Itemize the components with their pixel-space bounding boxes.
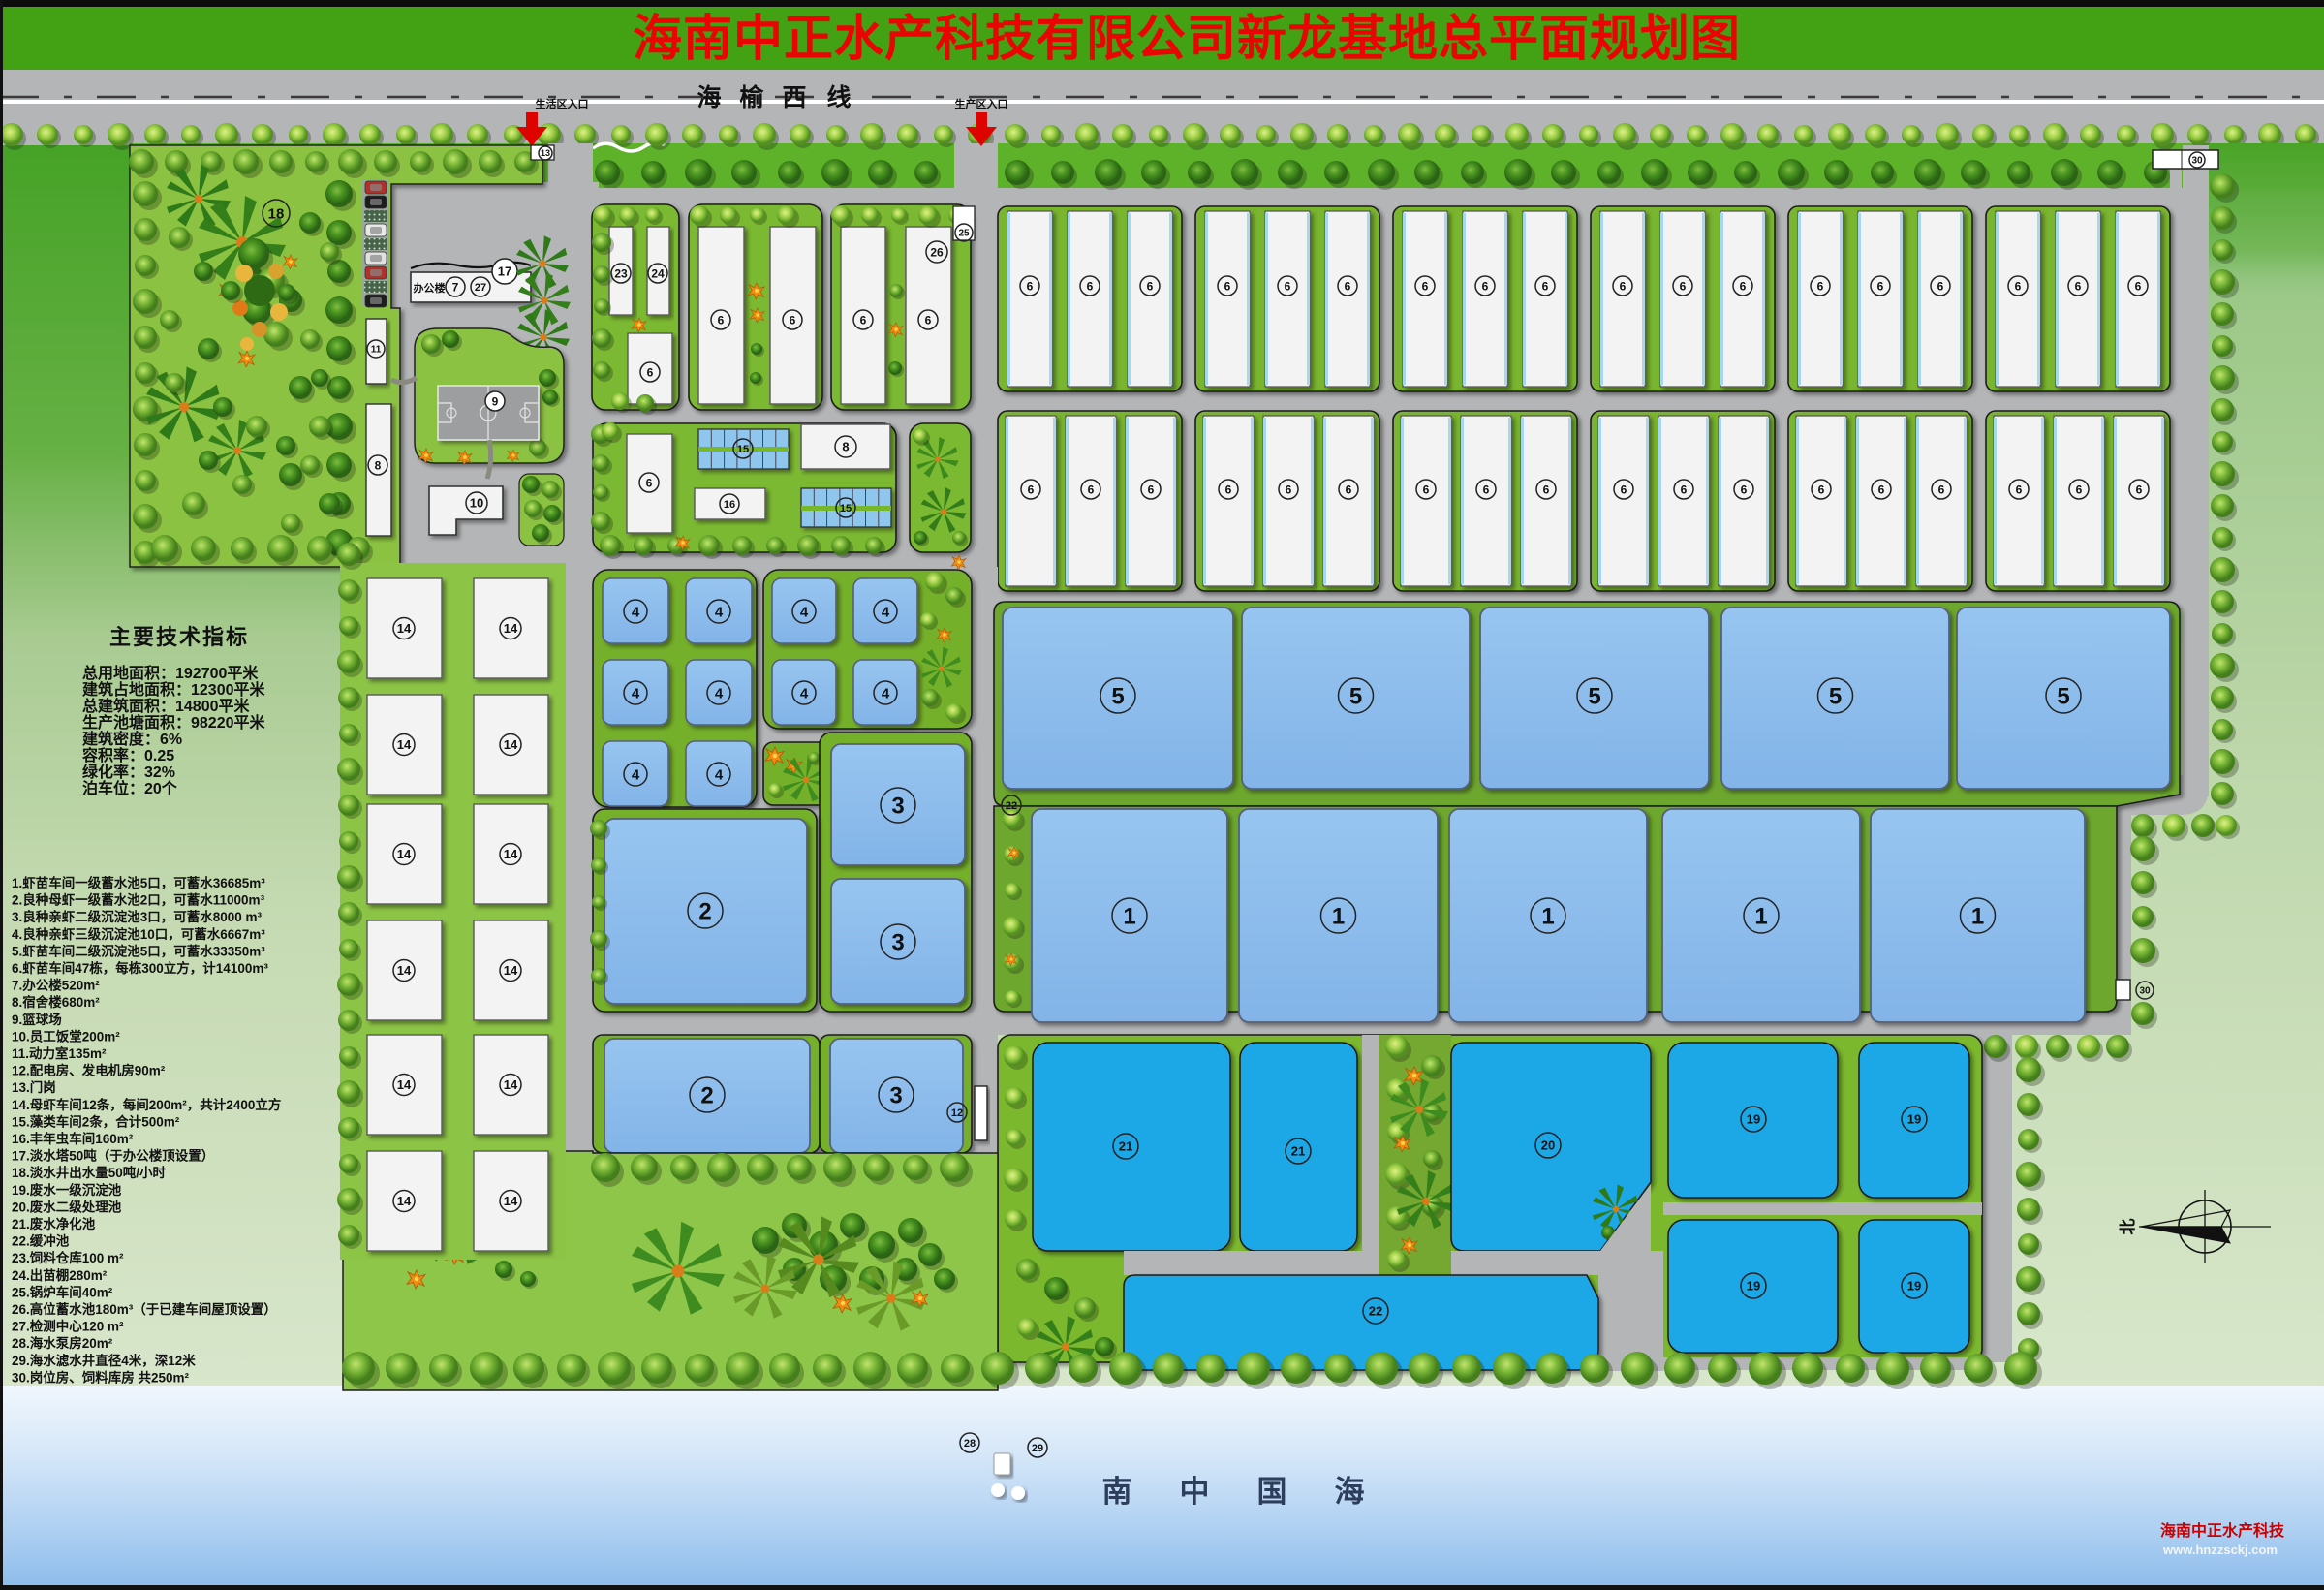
svg-text:西: 西: [782, 84, 806, 111]
svg-text:国: 国: [1257, 1475, 1287, 1509]
svg-text:海南中正水产科技有限公司新龙基地总平面规划图: 海南中正水产科技有限公司新龙基地总平面规划图: [633, 11, 1741, 66]
svg-text:14: 14: [504, 1077, 518, 1092]
svg-text:7.办公楼520m²: 7.办公楼520m²: [12, 978, 100, 993]
svg-text:6: 6: [1087, 279, 1094, 293]
svg-text:建筑密度：6%: 建筑密度：6%: [82, 730, 182, 748]
svg-text:22: 22: [1006, 800, 1017, 812]
svg-text:24.出苗棚280m²: 24.出苗棚280m²: [12, 1267, 108, 1283]
svg-text:9: 9: [492, 394, 499, 408]
svg-text:4.良种亲虾三级沉淀池10口，可蓄水6667m³: 4.良种亲虾三级沉淀池10口，可蓄水6667m³: [12, 926, 265, 942]
svg-text:南: 南: [1102, 1475, 1132, 1509]
svg-text:16: 16: [724, 499, 735, 511]
svg-text:2: 2: [698, 899, 711, 925]
svg-text:26: 26: [930, 245, 944, 259]
svg-text:6: 6: [1028, 483, 1035, 496]
svg-text:6: 6: [1681, 483, 1688, 496]
svg-text:海: 海: [697, 83, 721, 111]
svg-text:4: 4: [715, 685, 724, 701]
svg-text:13: 13: [541, 148, 550, 158]
svg-text:1: 1: [1123, 904, 1135, 930]
svg-text:5: 5: [1349, 684, 1362, 710]
svg-text:14: 14: [397, 1077, 412, 1092]
svg-text:13.门岗: 13.门岗: [12, 1079, 56, 1095]
svg-text:28.海水泵房20m²: 28.海水泵房20m²: [12, 1335, 113, 1351]
svg-text:1: 1: [1332, 904, 1345, 930]
svg-text:6: 6: [2076, 483, 2083, 496]
svg-text:18: 18: [268, 205, 285, 222]
svg-text:27: 27: [475, 282, 486, 294]
svg-text:4: 4: [800, 604, 809, 620]
svg-text:主要技术指标: 主要技术指标: [109, 625, 249, 649]
svg-text:6: 6: [718, 313, 725, 327]
svg-text:27.检测中心120 m²: 27.检测中心120 m²: [12, 1319, 124, 1334]
svg-text:7: 7: [452, 280, 459, 294]
svg-text:6: 6: [1818, 483, 1825, 496]
svg-text:28: 28: [964, 1438, 976, 1450]
svg-text:北: 北: [2119, 1219, 2137, 1235]
svg-text:泊车位：20个: 泊车位：20个: [82, 779, 178, 797]
svg-text:20.废水二级处理池: 20.废水二级处理池: [12, 1199, 122, 1214]
svg-text:3.良种亲虾二级沉淀池3口，可蓄水8000 m³: 3.良种亲虾二级沉淀池3口，可蓄水8000 m³: [12, 909, 263, 924]
svg-text:1: 1: [1971, 904, 1984, 930]
svg-text:容积率：0.25: 容积率：0.25: [81, 746, 174, 764]
svg-text:6: 6: [2015, 279, 2022, 293]
svg-text:10: 10: [470, 496, 483, 511]
svg-text:榆: 榆: [739, 83, 764, 111]
svg-text:6: 6: [1147, 279, 1154, 293]
svg-text:9.篮球场: 9.篮球场: [12, 1012, 62, 1027]
svg-text:6: 6: [1938, 483, 1945, 496]
svg-text:6: 6: [2016, 483, 2023, 496]
svg-text:6: 6: [1027, 279, 1034, 293]
svg-text:6: 6: [646, 476, 653, 489]
svg-text:14: 14: [397, 1194, 412, 1208]
svg-text:生产池塘面积：98220平米: 生产池塘面积：98220平米: [82, 713, 265, 732]
svg-text:6: 6: [1937, 279, 1944, 293]
svg-text:6: 6: [1620, 279, 1627, 293]
svg-text:6: 6: [1621, 483, 1627, 496]
svg-text:15.藻类车间2条，合计500m²: 15.藻类车间2条，合计500m²: [12, 1113, 180, 1129]
svg-text:6: 6: [1423, 483, 1430, 496]
svg-text:24: 24: [651, 266, 665, 280]
svg-text:30: 30: [2191, 156, 2203, 167]
svg-text:22: 22: [1369, 1304, 1382, 1319]
svg-text:1: 1: [1541, 904, 1554, 930]
svg-text:6: 6: [1483, 483, 1490, 496]
svg-text:4: 4: [882, 604, 890, 620]
svg-text:6: 6: [1225, 483, 1232, 496]
svg-text:4: 4: [632, 604, 640, 620]
svg-text:4: 4: [882, 685, 890, 701]
svg-text:8.宿舍楼680m²: 8.宿舍楼680m²: [12, 994, 100, 1010]
svg-text:14: 14: [504, 1194, 518, 1208]
svg-text:6: 6: [1878, 483, 1885, 496]
svg-text:6: 6: [860, 313, 867, 327]
svg-text:4: 4: [800, 685, 809, 701]
svg-text:3: 3: [891, 930, 904, 956]
svg-text:6: 6: [2136, 483, 2143, 496]
svg-text:6: 6: [1148, 483, 1155, 496]
svg-text:14: 14: [504, 737, 518, 752]
svg-text:6: 6: [647, 365, 654, 379]
svg-text:总用地面积：192700平米: 总用地面积：192700平米: [82, 664, 259, 682]
svg-text:6: 6: [1741, 483, 1748, 496]
svg-text:8: 8: [375, 458, 382, 472]
svg-text:5: 5: [1111, 684, 1124, 710]
svg-text:8: 8: [842, 440, 849, 454]
svg-text:6: 6: [1740, 279, 1747, 293]
svg-text:14: 14: [397, 963, 412, 978]
svg-text:6: 6: [790, 313, 796, 327]
svg-text:3: 3: [891, 794, 904, 820]
svg-text:绿化率：32%: 绿化率：32%: [82, 763, 175, 781]
svg-text:16.丰年虫车间160m²: 16.丰年虫车间160m²: [12, 1131, 134, 1146]
svg-text:5: 5: [2057, 684, 2069, 710]
svg-text:21: 21: [1119, 1139, 1132, 1154]
svg-text:办公楼: 办公楼: [414, 281, 446, 295]
svg-text:19.废水一级沉淀池: 19.废水一级沉淀池: [12, 1182, 122, 1198]
svg-text:5: 5: [1588, 684, 1600, 710]
svg-text:30: 30: [2139, 986, 2151, 997]
svg-text:14: 14: [397, 847, 412, 861]
svg-text:25.锅炉车间40m²: 25.锅炉车间40m²: [12, 1284, 113, 1299]
svg-text:6: 6: [1286, 483, 1292, 496]
svg-text:21.废水净化池: 21.废水净化池: [12, 1216, 96, 1231]
svg-text:14: 14: [504, 621, 518, 636]
svg-text:6: 6: [1680, 279, 1687, 293]
svg-text:10.员工饭堂200m²: 10.员工饭堂200m²: [12, 1028, 120, 1044]
svg-text:6: 6: [1542, 279, 1549, 293]
svg-text:14: 14: [397, 737, 412, 752]
svg-text:6: 6: [1285, 279, 1291, 293]
svg-text:23: 23: [614, 266, 628, 280]
svg-text:4: 4: [632, 685, 640, 701]
svg-text:海南中正水产科技: 海南中正水产科技: [2160, 1521, 2285, 1540]
svg-text:11.动力室135m²: 11.动力室135m²: [12, 1045, 107, 1061]
svg-text:26.高位蓄水池180m³（于已建车间屋顶设置）: 26.高位蓄水池180m³（于已建车间屋顶设置）: [12, 1301, 277, 1317]
svg-text:12: 12: [951, 1107, 963, 1119]
svg-text:6: 6: [2135, 279, 2142, 293]
svg-text:15: 15: [737, 444, 749, 455]
svg-text:2.良种母虾一级蓄水池2口，可蓄水11000m³: 2.良种母虾一级蓄水池2口，可蓄水11000m³: [12, 892, 265, 908]
svg-text:12.配电房、发电机房90m²: 12.配电房、发电机房90m²: [12, 1063, 166, 1078]
svg-text:6.虾苗车间47栋，每栋300立方，计14100m³: 6.虾苗车间47栋，每栋300立方，计14100m³: [12, 960, 268, 976]
svg-text:6: 6: [1224, 279, 1231, 293]
svg-text:19: 19: [1747, 1279, 1760, 1294]
svg-text:29.海水滤水井直径4米，深12米: 29.海水滤水井直径4米，深12米: [12, 1353, 196, 1368]
svg-text:总建筑面积：14800平米: 总建筑面积：14800平米: [82, 697, 250, 715]
svg-text:www.hnzzsckj.com: www.hnzzsckj.com: [2162, 1543, 2278, 1557]
svg-text:25: 25: [958, 229, 970, 239]
svg-text:19: 19: [1747, 1112, 1760, 1127]
svg-text:6: 6: [1877, 279, 1884, 293]
svg-text:6: 6: [1543, 483, 1550, 496]
svg-text:20: 20: [1541, 1138, 1555, 1153]
svg-text:5: 5: [1829, 684, 1842, 710]
svg-text:6: 6: [1345, 279, 1351, 293]
svg-text:29: 29: [1032, 1443, 1043, 1454]
svg-text:11: 11: [371, 345, 382, 356]
svg-text:中: 中: [1180, 1475, 1210, 1509]
svg-text:5.虾苗车间二级沉淀池5口，可蓄水33350m³: 5.虾苗车间二级沉淀池5口，可蓄水33350m³: [12, 943, 265, 958]
svg-text:14: 14: [397, 621, 412, 636]
svg-text:6: 6: [1422, 279, 1429, 293]
svg-text:19: 19: [1907, 1279, 1921, 1294]
svg-text:生产区入口: 生产区入口: [955, 97, 1008, 110]
svg-text:线: 线: [826, 83, 851, 111]
svg-text:23.饲料仓库100 m²: 23.饲料仓库100 m²: [12, 1250, 124, 1265]
svg-text:14: 14: [504, 963, 518, 978]
svg-text:14: 14: [504, 847, 518, 861]
svg-text:6: 6: [1482, 279, 1489, 293]
svg-text:6: 6: [1817, 279, 1824, 293]
svg-text:1.虾苗车间一级蓄水池5口，可蓄水36685m³: 1.虾苗车间一级蓄水池5口，可蓄水36685m³: [12, 875, 265, 890]
svg-text:22.缓冲池: 22.缓冲池: [12, 1233, 70, 1249]
svg-text:15: 15: [840, 503, 852, 514]
svg-text:海: 海: [1335, 1475, 1365, 1509]
svg-text:建筑占地面积：12300平米: 建筑占地面积：12300平米: [82, 680, 265, 699]
svg-text:21: 21: [1291, 1144, 1305, 1159]
svg-text:14.母虾车间12条，每间200m²，共计2400立方: 14.母虾车间12条，每间200m²，共计2400立方: [12, 1097, 281, 1112]
svg-text:6: 6: [1088, 483, 1095, 496]
svg-text:6: 6: [925, 313, 932, 327]
svg-text:4: 4: [715, 766, 724, 783]
svg-text:4: 4: [632, 766, 640, 783]
svg-text:生活区入口: 生活区入口: [536, 97, 589, 110]
svg-text:1: 1: [1754, 904, 1767, 930]
svg-text:19: 19: [1907, 1112, 1921, 1127]
svg-text:6: 6: [2075, 279, 2082, 293]
svg-text:6: 6: [1346, 483, 1352, 496]
svg-text:3: 3: [889, 1083, 902, 1109]
svg-text:2: 2: [700, 1083, 713, 1109]
svg-text:17.淡水塔50吨（于办公楼顶设置）: 17.淡水塔50吨（于办公楼顶设置）: [12, 1148, 214, 1164]
svg-text:17: 17: [498, 265, 511, 279]
svg-text:18.淡水井出水量50吨/小时: 18.淡水井出水量50吨/小时: [12, 1165, 167, 1180]
svg-text:30.岗位房、饲料库房 共250m²: 30.岗位房、饲料库房 共250m²: [12, 1369, 190, 1385]
svg-text:4: 4: [715, 604, 724, 620]
